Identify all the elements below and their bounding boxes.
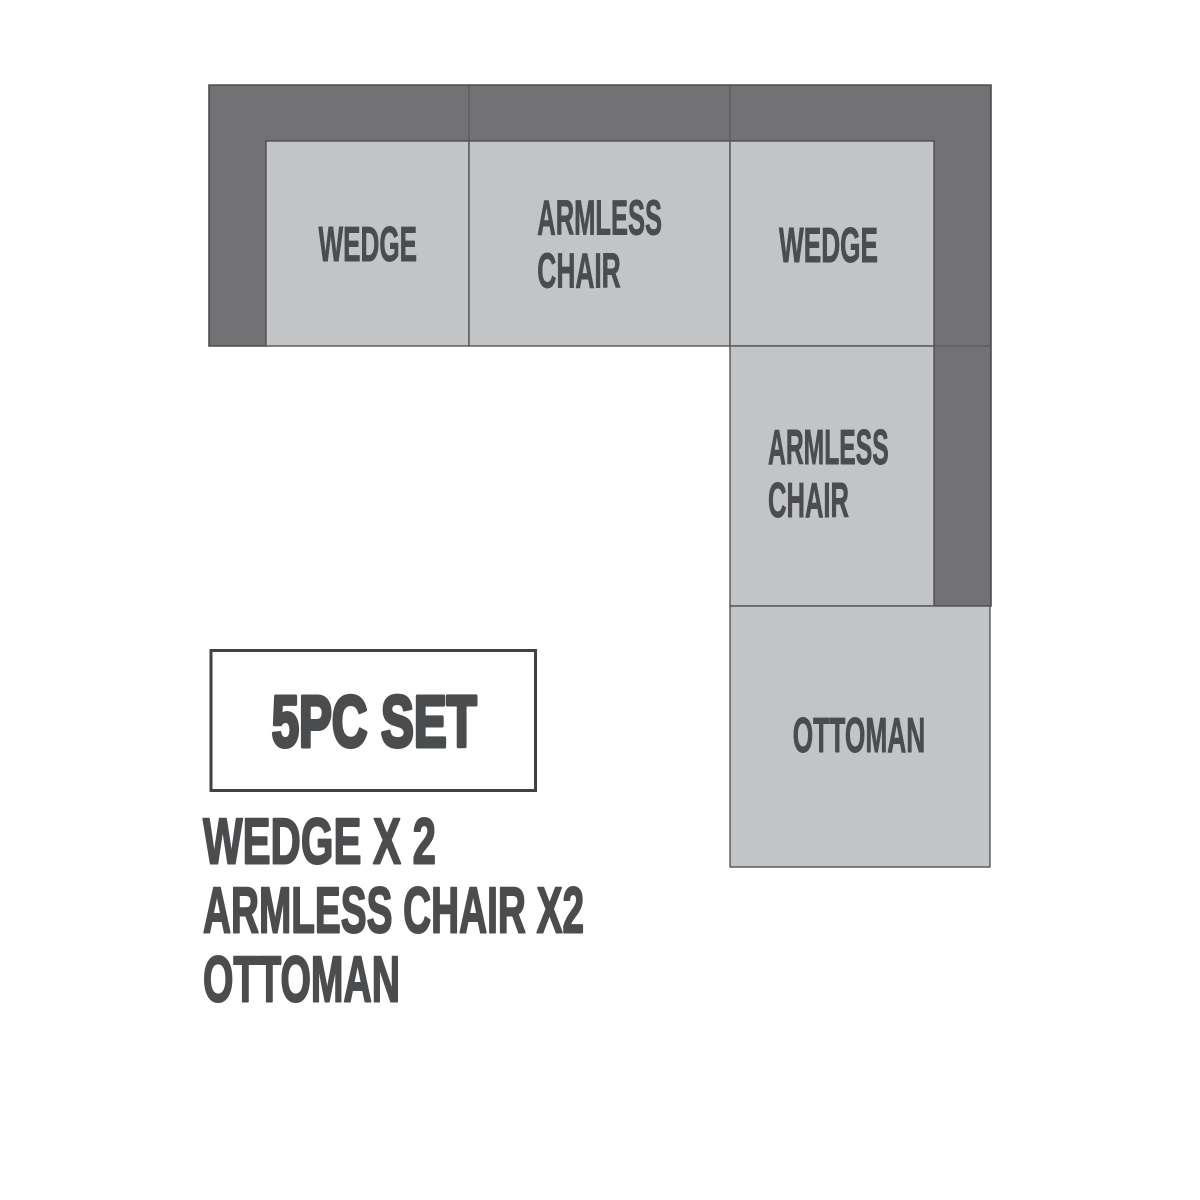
svg-text:WEDGE: WEDGE (779, 218, 878, 273)
svg-text:WEDGE X 2: WEDGE X 2 (203, 806, 436, 878)
svg-text:ARMLESS: ARMLESS (537, 191, 662, 246)
svg-text:CHAIR: CHAIR (768, 473, 849, 528)
svg-text:ARMLESS: ARMLESS (768, 420, 889, 475)
svg-text:CHAIR: CHAIR (537, 244, 620, 299)
svg-text:OTTOMAN: OTTOMAN (793, 708, 926, 763)
svg-text:ARMLESS CHAIR X2: ARMLESS CHAIR X2 (203, 875, 584, 947)
svg-text:OTTOMAN: OTTOMAN (203, 944, 400, 1016)
svg-text:5PC SET: 5PC SET (272, 683, 477, 763)
svg-text:WEDGE: WEDGE (319, 217, 418, 272)
